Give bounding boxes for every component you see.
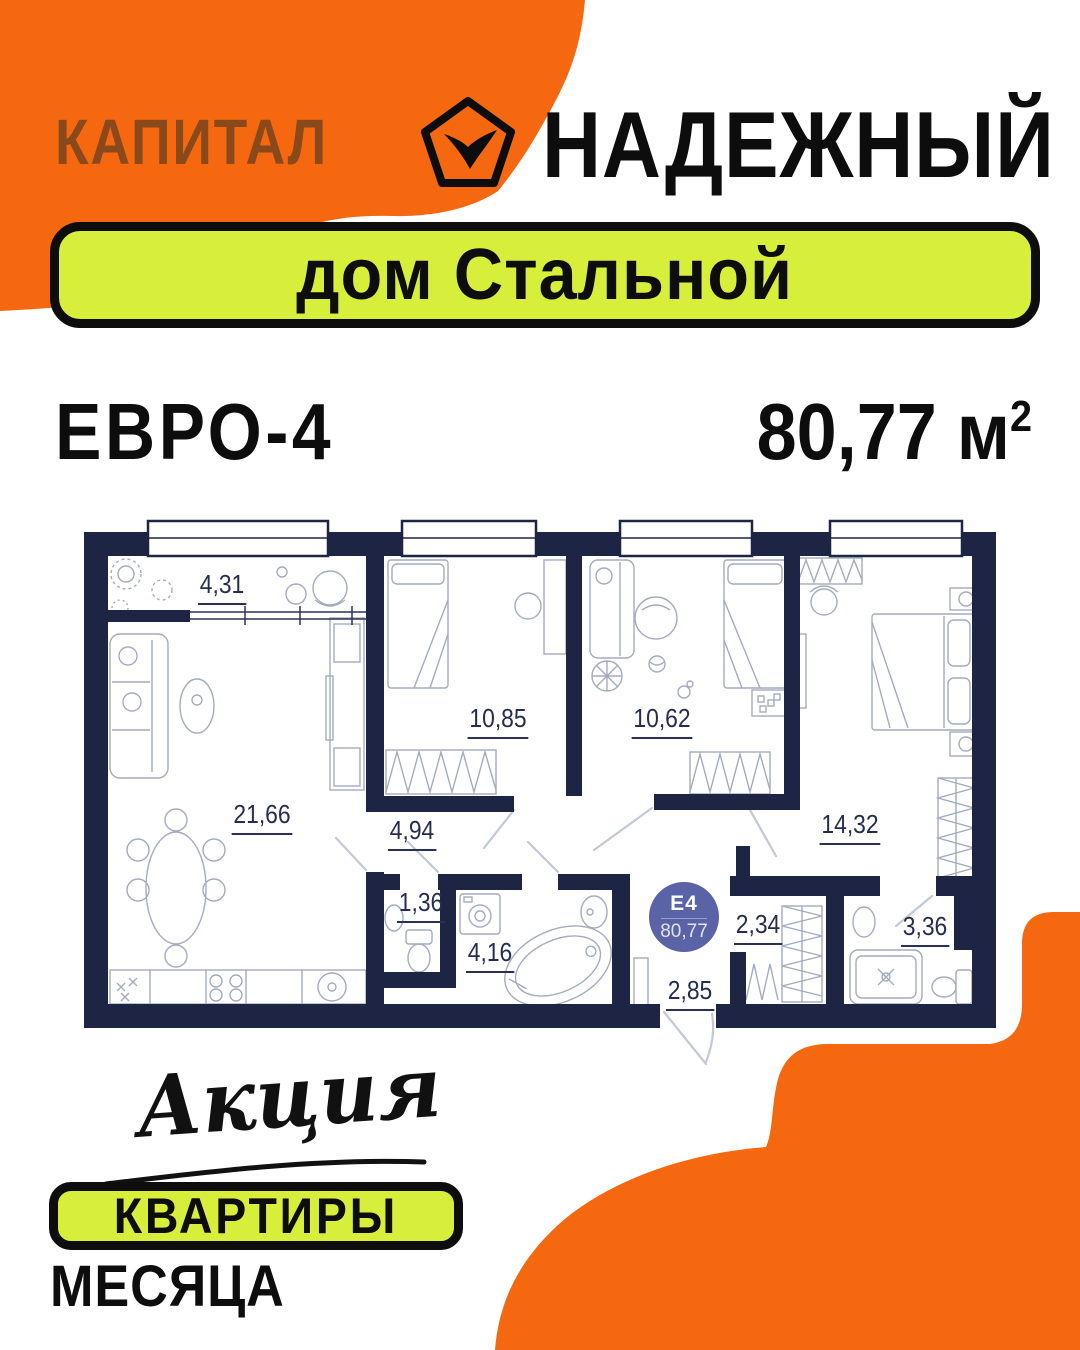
balcony-glazing — [190, 606, 368, 625]
room-area-label-wardrobe: 2,34 — [734, 911, 782, 945]
unit-badge-divider — [661, 918, 707, 919]
room-area-label-shower-room: 3,36 — [901, 913, 949, 947]
room-area-label-loggia: 4,31 — [198, 571, 246, 605]
unit-badge: Е4 80,77 — [649, 882, 719, 952]
promo-subline: МЕСЯЦА — [50, 1258, 285, 1316]
unit-code: Е4 — [670, 892, 698, 916]
promo-script-text: Акция — [134, 1045, 444, 1150]
walls — [84, 532, 996, 1028]
room-area-label-bathroom: 4,16 — [466, 939, 514, 973]
promo-badge: КВАРТИРЫ — [49, 1182, 463, 1250]
unit-area: 80,77 — [660, 921, 708, 943]
promo-badge-label: КВАРТИРЫ — [114, 1187, 398, 1245]
room-area-label-hallway: 4,94 — [388, 817, 436, 851]
room-area-label-corridor: 2,85 — [666, 977, 714, 1011]
room-area-label-bedroom-2: 14,32 — [820, 811, 881, 845]
room-area-label-children-room: 10,62 — [632, 705, 693, 739]
furniture-sketches — [110, 558, 982, 1022]
poster-canvas: КАПИТАЛ НАДЕЖНЫЙ дом Стальной ЕВРО-4 80,… — [0, 0, 1080, 1350]
room-area-label-wc: 1,36 — [397, 889, 445, 923]
room-area-label-living-kitchen: 21,66 — [232, 801, 293, 835]
room-area-label-bedroom-1: 10,85 — [468, 705, 529, 739]
